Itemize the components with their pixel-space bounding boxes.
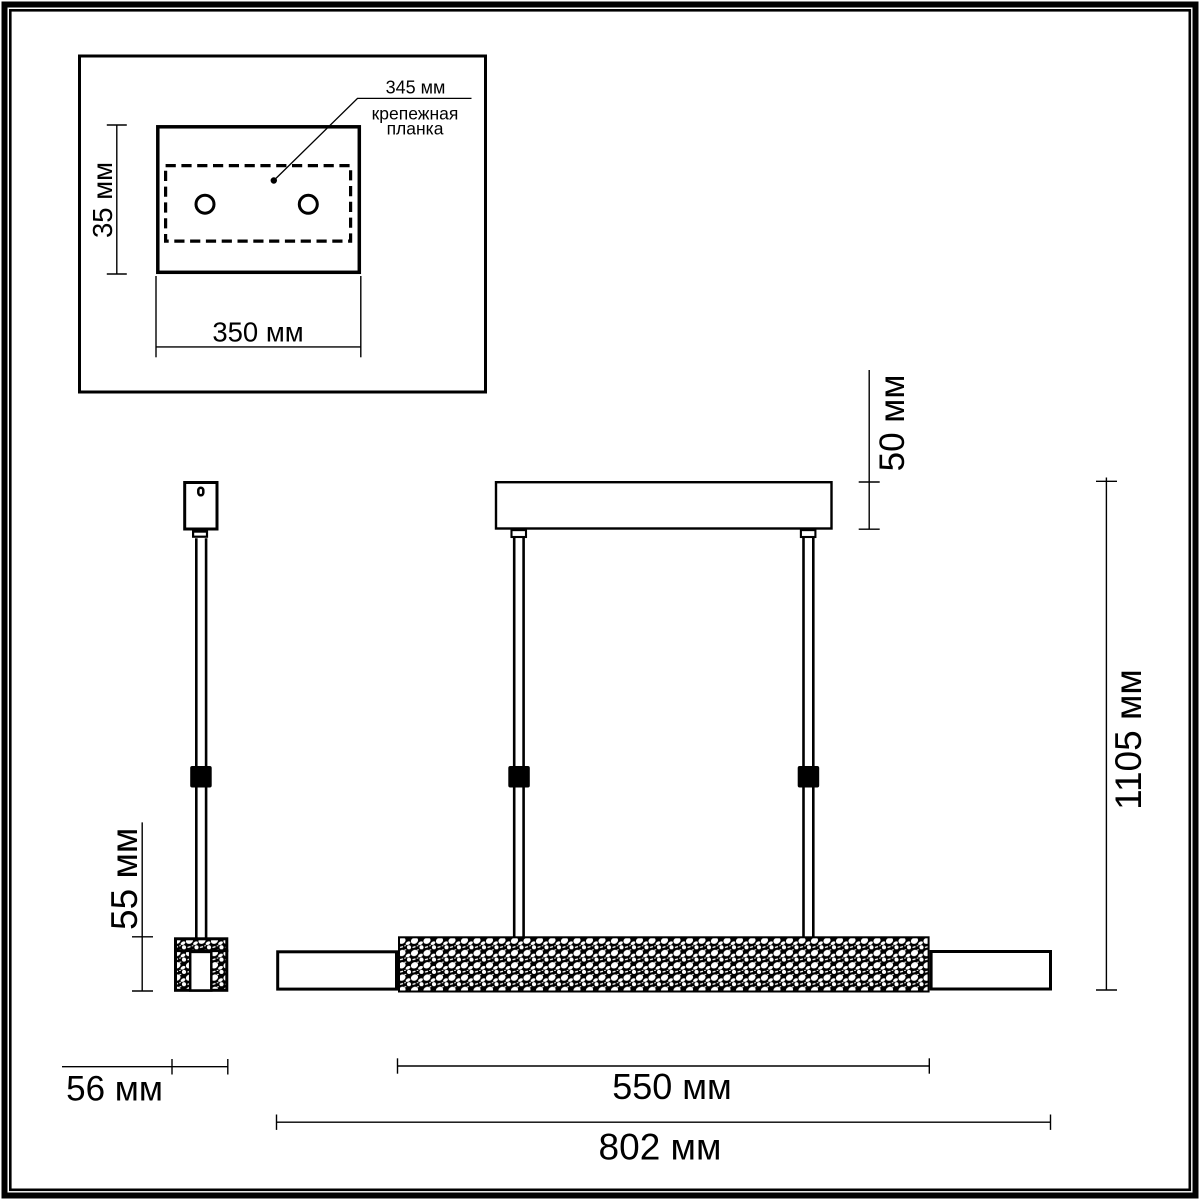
svg-text:50 мм: 50 мм xyxy=(873,375,912,472)
svg-text:планка: планка xyxy=(387,119,444,139)
svg-text:55 мм: 55 мм xyxy=(104,828,145,930)
svg-text:550 мм: 550 мм xyxy=(612,1066,732,1107)
svg-text:802 мм: 802 мм xyxy=(599,1127,722,1168)
svg-text:56 мм: 56 мм xyxy=(66,1070,163,1109)
svg-text:1105 мм: 1105 мм xyxy=(1108,669,1149,810)
svg-text:35 мм: 35 мм xyxy=(87,162,118,238)
svg-text:345 мм: 345 мм xyxy=(386,78,446,98)
svg-text:350 мм: 350 мм xyxy=(212,317,303,348)
